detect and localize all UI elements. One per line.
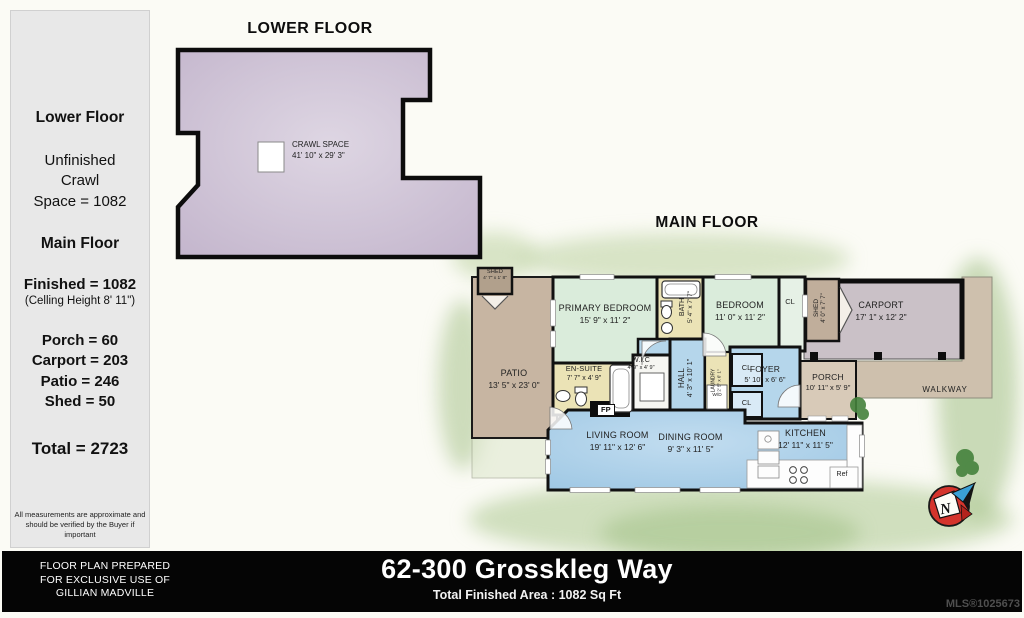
patio-surface (472, 277, 557, 438)
room-label-carport: CARPORT 17' 1" x 12' 2" (825, 300, 937, 323)
lower-floor-line: Unfinished (11, 151, 149, 171)
ceiling-height: (Celling Height 8' 11") (11, 295, 149, 307)
lower-floor-line: Space = 1082 (11, 192, 149, 212)
sink-icon (662, 323, 673, 334)
toilet-icon (661, 301, 672, 319)
main-floor-heading: Main Floor (11, 235, 149, 253)
room-label-foyer: FOYER 5' 10" x 6' 6" (728, 364, 802, 385)
crawl-space-label: CRAWL SPACE 41' 10" x 29' 3" (292, 140, 382, 162)
room-label-walkway: WALKWAY (905, 385, 985, 395)
shed-area: Shed = 50 (11, 392, 149, 412)
ensuite-toilet-icon (575, 387, 587, 406)
carport-post (810, 352, 818, 360)
porch-railing-gap (832, 416, 848, 421)
footer-bar: FLOOR PLAN PREPARED FOR EXCLUSIVE USE OF… (2, 551, 1022, 612)
room-label-hall: HALL 4' 3" x 10' 1" (676, 342, 696, 414)
room-label-bedroom-closet: CL (777, 297, 803, 306)
room-label-shed-left: SHED 4' 7" x 1' 8" (477, 269, 513, 282)
compass-icon: N (926, 480, 982, 532)
tree-icon (850, 397, 979, 477)
carport-area: Carport = 203 (11, 351, 149, 371)
porch-railing-gap (808, 416, 826, 421)
room-label-en-suite: EN-SUITE 7' 7" x 4' 9" (556, 364, 612, 383)
room-label-dining-room: DINING ROOM 9' 3" x 11' 5" (633, 432, 748, 455)
room-label-patio: PATIO 13' 5" x 23' 0" (470, 368, 558, 391)
wic-shelf (640, 373, 664, 401)
fridge-label: Ref (828, 471, 856, 478)
mls-number: MLS®1025673 (946, 598, 1020, 610)
total-finished-area: Total Finished Area : 1082 Sq Ft (32, 588, 1022, 602)
room-label-laundry: LAUNDRY 2' 5" x 6' 1" (711, 354, 722, 408)
carport-post (874, 352, 882, 360)
floor-plan-page: Lower Floor Unfinished Crawl Space = 108… (0, 0, 1024, 618)
finished-area: Finished = 1082 (11, 275, 149, 295)
fireplace-label: FP (597, 404, 615, 416)
room-label-bedroom: BEDROOM 11' 0" x 11' 2" (700, 300, 780, 323)
crawl-hatch-icon (258, 142, 284, 172)
room-label-kitchen: KITCHEN 12' 11" x 11' 5" (748, 428, 863, 451)
lower-floor-title: LOWER FLOOR (200, 20, 420, 38)
room-label-porch: PORCH 10' 11" x 5' 9" (799, 372, 857, 393)
lower-floor-line: Crawl (11, 171, 149, 191)
porch-area: Porch = 60 (11, 331, 149, 351)
address: 62-300 Grosskleg Way (32, 554, 1022, 585)
lower-floor-heading: Lower Floor (11, 109, 149, 127)
bedroom-closet-room (779, 277, 805, 351)
ensuite-sink-icon (556, 391, 570, 402)
room-label-bath: BATH 5' 4" x 7' 7" (677, 278, 697, 336)
patio-area: Patio = 246 (11, 372, 149, 392)
room-label-primary-bedroom: PRIMARY BEDROOM 15' 9" x 11' 2" (553, 303, 657, 326)
total-area: Total = 2723 (11, 439, 149, 459)
carport-post (938, 352, 946, 360)
address-block: 62-300 Grosskleg Way Total Finished Area… (32, 554, 1022, 602)
main-floor-title: MAIN FLOOR (627, 214, 787, 232)
summary-sidebar: Lower Floor Unfinished Crawl Space = 108… (10, 10, 150, 548)
washer-dryer-label: W/D (707, 393, 727, 398)
disclaimer: All measurements are approximate and sho… (11, 510, 149, 540)
room-label-closet-bottom: CL (731, 398, 762, 407)
room-label-wic: W.I.C 4' 9" x 4' 9" (621, 356, 661, 372)
